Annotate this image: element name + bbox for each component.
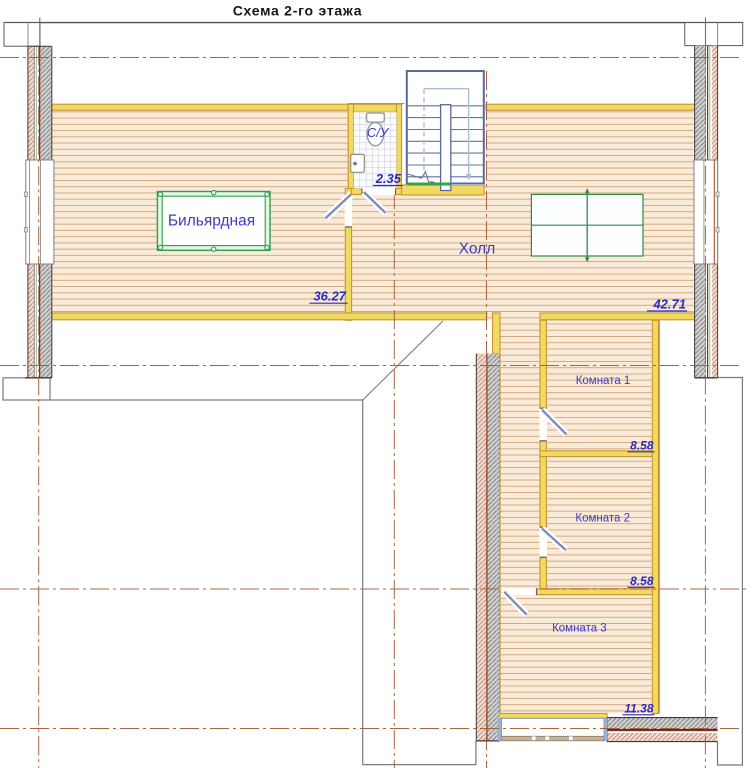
svg-text:Бильярдная: Бильярдная: [168, 213, 255, 230]
svg-text:Комната 3: Комната 3: [552, 623, 607, 635]
svg-text:2.35: 2.35: [375, 171, 402, 186]
svg-text:С/У: С/У: [367, 125, 390, 140]
svg-text:Комната 2: Комната 2: [575, 513, 630, 525]
svg-text:8.58: 8.58: [630, 574, 654, 588]
svg-text:Холл: Холл: [459, 241, 496, 258]
svg-text:Комната 1: Комната 1: [576, 375, 631, 387]
svg-text:Схема 2-го этажа: Схема 2-го этажа: [233, 3, 363, 19]
svg-text:8.58: 8.58: [630, 439, 654, 453]
svg-text:42.71: 42.71: [652, 297, 686, 312]
svg-text:36.27: 36.27: [313, 289, 346, 304]
svg-text:11.38: 11.38: [624, 702, 653, 716]
